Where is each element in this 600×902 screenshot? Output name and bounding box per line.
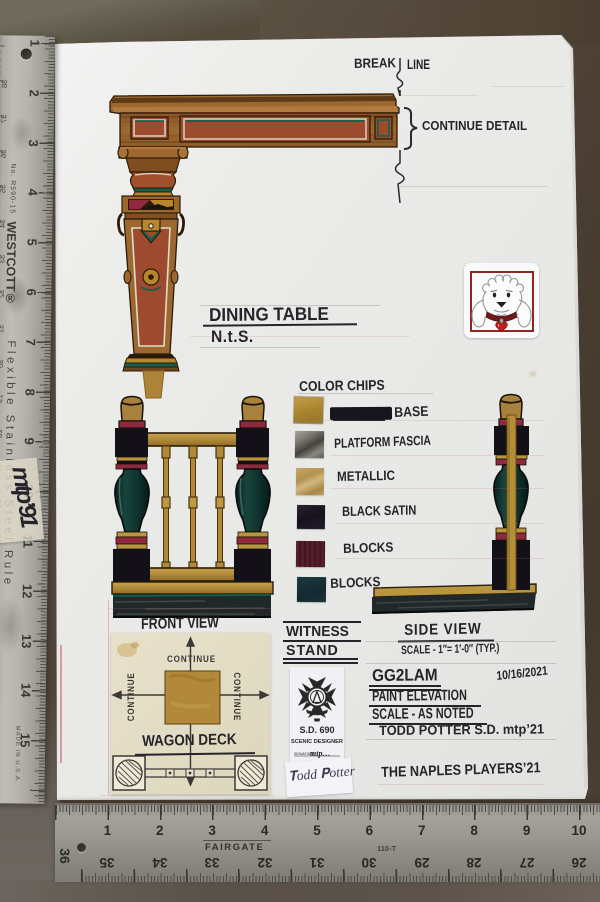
svg-text:mtp…: mtp… <box>310 749 330 758</box>
svg-text:S.D. 690: S.D. 690 <box>299 725 334 735</box>
svg-text:SCENIC DESIGNER: SCENIC DESIGNER <box>291 739 343 745</box>
